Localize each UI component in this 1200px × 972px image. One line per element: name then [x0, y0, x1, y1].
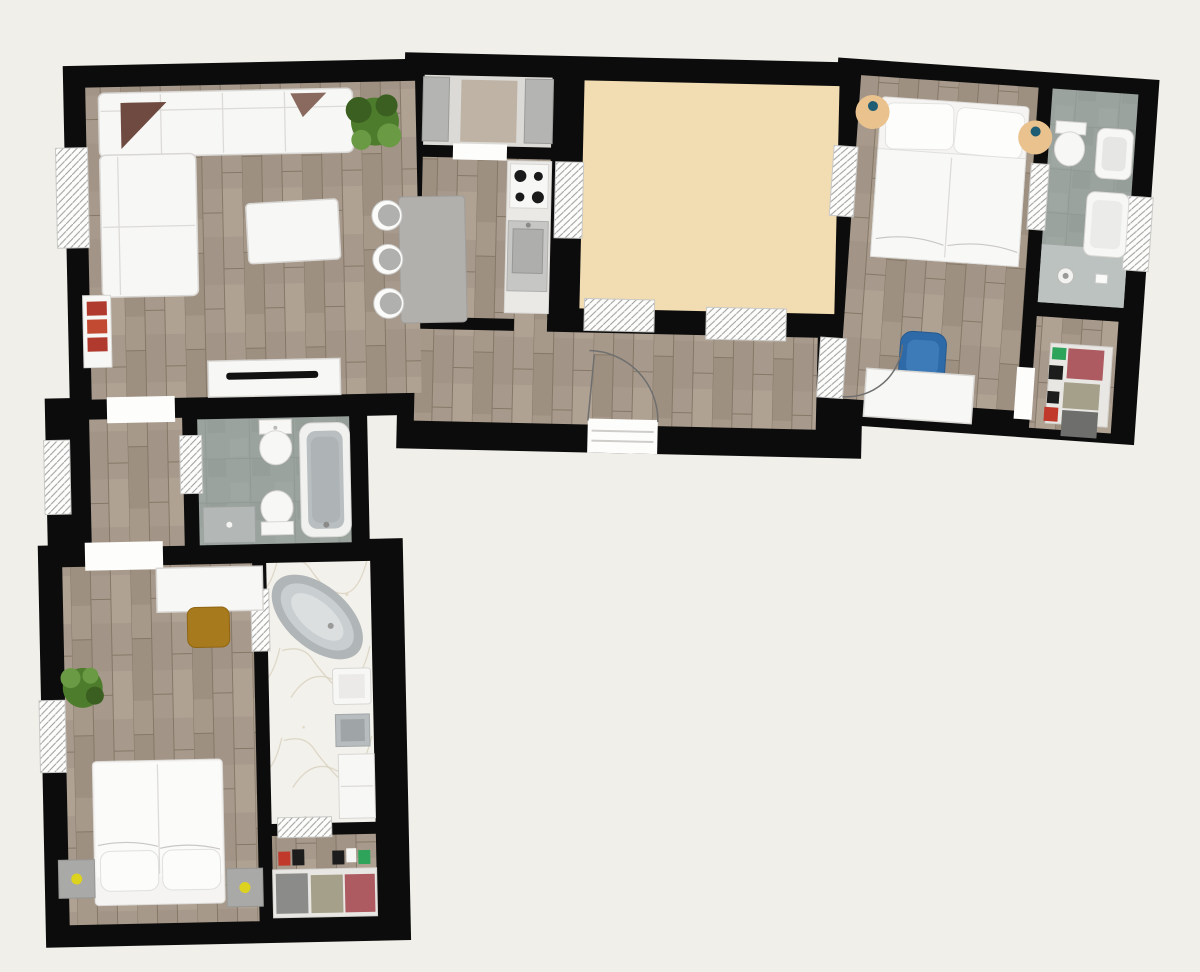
pillow — [953, 107, 1025, 160]
door-bathroom-closet-bottom — [277, 817, 331, 838]
door-terrace-1 — [584, 298, 655, 332]
window-terrace-bedroom — [829, 145, 858, 217]
stove — [510, 164, 549, 209]
basket-olive — [311, 874, 344, 913]
entrance-door-threshold — [587, 419, 658, 455]
door-corridor-bedroom — [85, 541, 164, 571]
bar-stools — [372, 200, 404, 319]
vanity-middle — [203, 506, 256, 543]
washbasin-gray-bottom — [335, 714, 370, 747]
bed-bottom — [92, 759, 225, 906]
floors-middle — [414, 75, 840, 430]
pantry-rug — [460, 80, 517, 143]
coffee-table — [246, 199, 341, 264]
bidet-middle — [261, 490, 294, 535]
window-terrace-left — [554, 162, 584, 239]
basket-red — [1066, 348, 1104, 380]
desk-bottom — [156, 566, 263, 612]
washbasin-white-bottom — [332, 668, 371, 705]
nightstand-bottom-right — [227, 868, 264, 907]
closet-item-green — [1052, 347, 1067, 360]
pillow — [100, 850, 159, 891]
closet-item-black — [292, 849, 304, 865]
tv-stand — [208, 358, 341, 397]
terrace-room-floor — [579, 80, 839, 314]
pantry-counter-left — [422, 77, 449, 142]
door-bedroom-closet-right — [1014, 367, 1036, 420]
pantry-counter-right — [524, 79, 553, 144]
living-plant — [345, 94, 401, 150]
door-hall-bedroom-right — [817, 337, 847, 399]
closet-item-black — [332, 850, 344, 864]
pillow — [162, 849, 221, 890]
bathtub-basin-right — [1083, 191, 1129, 258]
closet-item-red — [1043, 407, 1058, 422]
basket-gray — [276, 873, 309, 914]
desk-right — [863, 368, 974, 423]
closet-item-green — [358, 850, 370, 864]
wooden-chair — [187, 607, 230, 648]
window-living-left — [55, 148, 89, 249]
toilet-middle — [259, 419, 292, 465]
window-bedroom-bottom-left — [39, 700, 67, 773]
closet-item-black — [1048, 365, 1063, 380]
pillow — [885, 103, 954, 150]
basket-red — [345, 874, 376, 913]
nightstand-bottom-left — [58, 860, 95, 899]
bathtub-middle — [299, 422, 351, 537]
basket-olive — [1062, 382, 1100, 410]
radiator-shelf — [83, 295, 113, 368]
door-terrace-2 — [706, 307, 787, 341]
kitchen-sink — [507, 221, 549, 292]
basket-dark — [1060, 410, 1098, 438]
kitchen-hall-opening — [514, 317, 547, 334]
window-corridor-left — [44, 440, 72, 515]
storage-cabinet-bottom — [338, 754, 375, 819]
closet-item-white — [346, 848, 356, 862]
floor-plan-svg: apartment-floor-plan-top-view — [0, 0, 1200, 972]
washbasin-right — [1095, 128, 1134, 180]
corridor-floor — [89, 418, 185, 548]
door-pantry-kitchen — [453, 143, 507, 160]
floor-plan-canvas: apartment-floor-plan-top-view — [0, 0, 1200, 972]
kitchen-island — [399, 196, 468, 323]
door-living-corridor — [107, 396, 176, 423]
closet-item-red — [278, 852, 290, 866]
door-corridor-bathroom — [179, 435, 202, 493]
closet-item-black — [1047, 391, 1060, 404]
hallway-floor — [414, 329, 818, 430]
bed-right — [871, 97, 1030, 267]
